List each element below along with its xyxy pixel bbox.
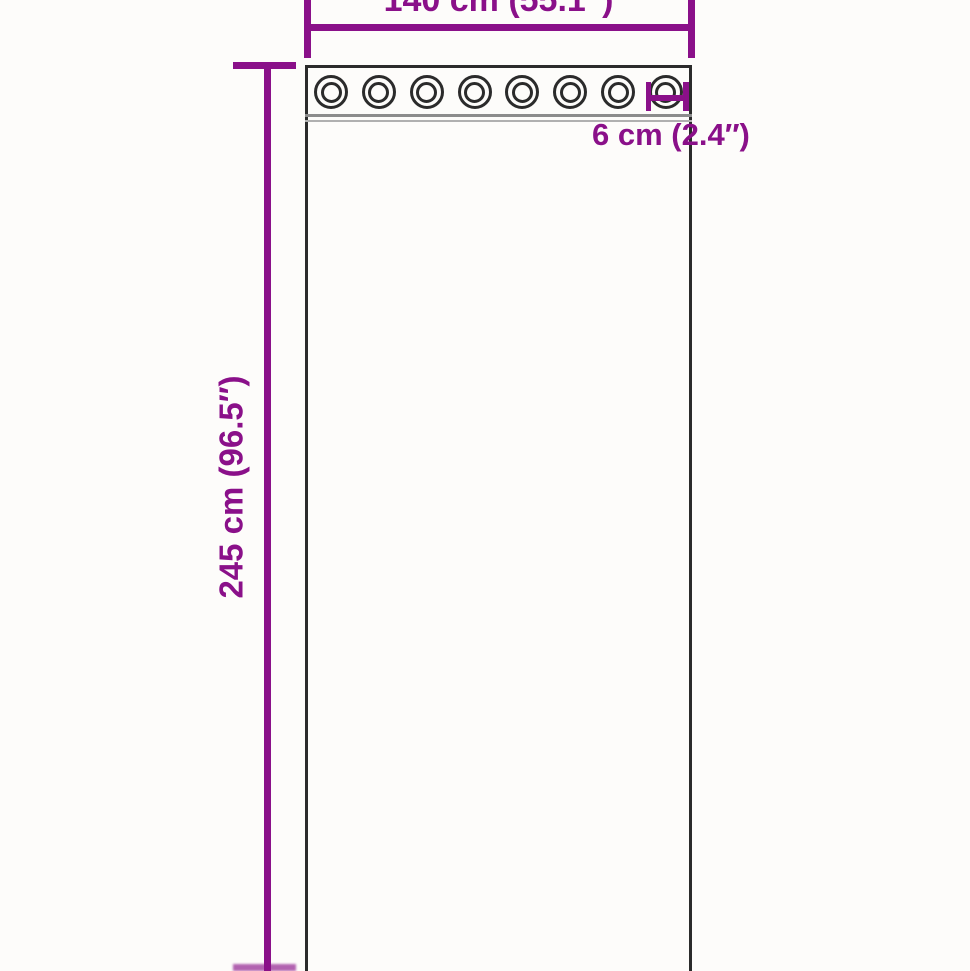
grommet-icon xyxy=(314,75,348,109)
height-dimension-label: 245 cm (96.5″) xyxy=(215,375,248,598)
grommet-inner-ring xyxy=(416,82,437,103)
grommet-row xyxy=(314,75,683,109)
grommet-icon xyxy=(601,75,635,109)
grommet-inner-ring xyxy=(464,82,485,103)
grommet-bracket-mid-bar xyxy=(646,95,689,101)
grommet-inner-ring xyxy=(608,82,629,103)
grommet-icon xyxy=(458,75,492,109)
grommet-inner-ring xyxy=(321,82,342,103)
grommet-icon xyxy=(362,75,396,109)
curtain-panel-outline xyxy=(305,65,692,971)
dimension-diagram: 140 cm (55.1″) 245 cm (96.5″) 6 cm (2.4″… xyxy=(0,0,970,971)
grommet-inner-ring xyxy=(560,82,581,103)
grommet-icon xyxy=(649,75,683,109)
grommet-icon xyxy=(505,75,539,109)
width-dimension-line xyxy=(307,24,693,31)
grommet-icon xyxy=(553,75,587,109)
grommet-diameter-label: 6 cm (2.4″) xyxy=(592,119,750,150)
height-dimension-tick-bottom xyxy=(233,964,296,971)
height-dimension-line xyxy=(264,62,271,971)
height-dimension-tick-top xyxy=(233,62,296,69)
grommet-inner-ring xyxy=(368,82,389,103)
grommet-icon xyxy=(410,75,444,109)
width-dimension-label: 140 cm (55.1″) xyxy=(305,0,692,17)
grommet-inner-ring xyxy=(512,82,533,103)
